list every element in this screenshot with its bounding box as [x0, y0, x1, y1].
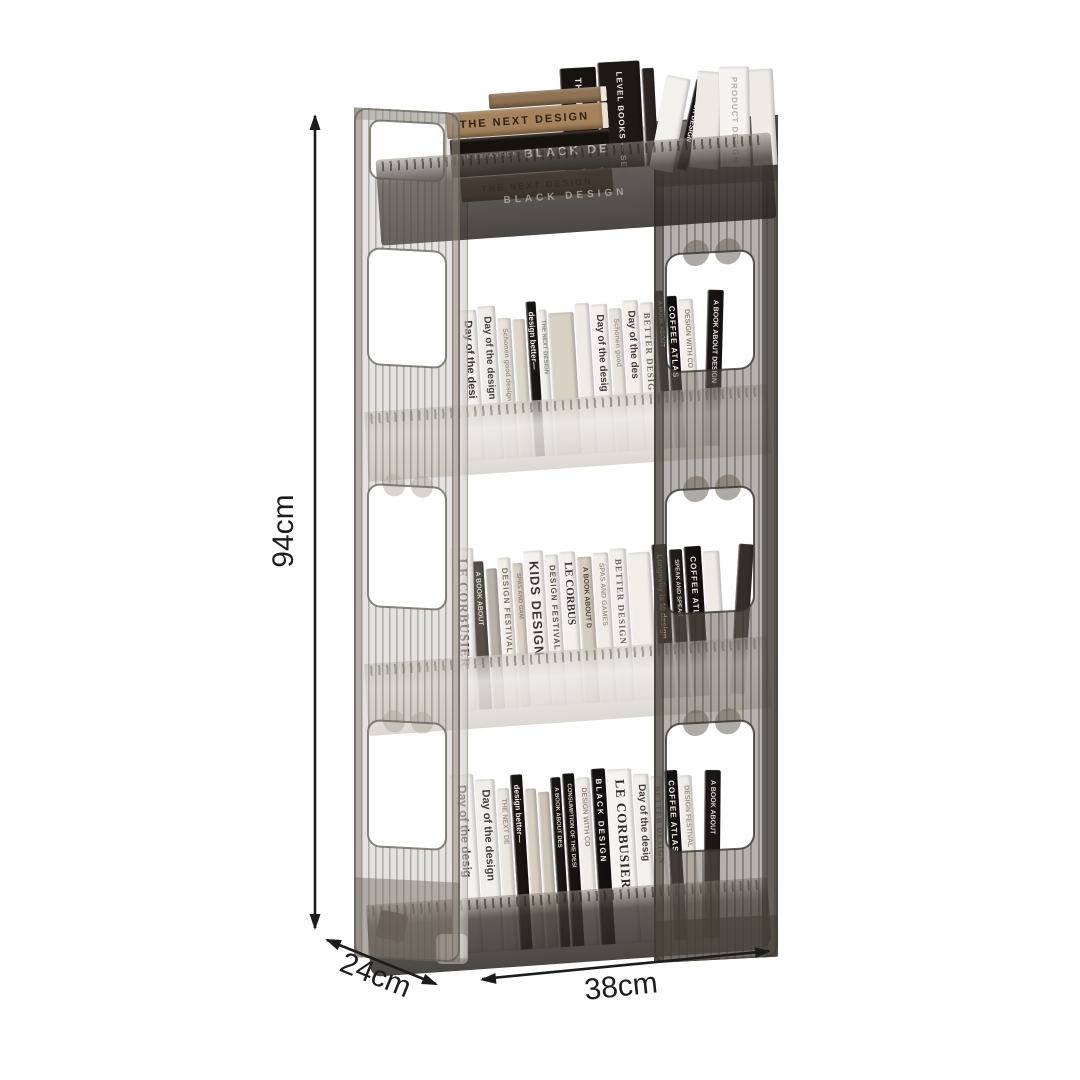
tray-engraving-text: BLACK DESIGN — [503, 186, 628, 206]
book-spine-title: design better— — [511, 774, 524, 843]
book-spine-title: SPAS AND GAMES — [597, 553, 608, 626]
book-spine-title — [711, 72, 712, 82]
right-side-panel-graphic — [654, 115, 778, 963]
book-spine-title: Schonen good design — [500, 318, 512, 401]
left-side-panel-graphic — [354, 107, 460, 963]
book-spine-title — [639, 553, 640, 563]
height-dimension-label: 94cm — [267, 494, 300, 567]
book-spine-title — [543, 792, 544, 802]
book-spine-title: BLACK DESIGN — [593, 768, 608, 863]
book-spine-title: THE NEXT DESIGN — [459, 110, 589, 131]
book-spine-title — [519, 319, 520, 329]
book-spine-title: Schonen good — [612, 308, 623, 367]
book-spine-title: Day of the design — [481, 306, 498, 400]
right-side-panel — [654, 115, 778, 963]
book-spine-title — [530, 789, 531, 799]
book-spine-title: CONSUMPTION OF THE DESI — [565, 773, 577, 868]
book-spine-title: Day of the desig — [635, 774, 651, 862]
book-spine-title: Day of the desig — [593, 304, 609, 392]
width-dimension-label: 38cm — [583, 966, 659, 1006]
book-spine-title — [761, 69, 762, 79]
book-spine-title: DESIGN FESTIVAL — [547, 555, 562, 651]
book-spine-title: Day of the design — [479, 779, 497, 881]
book-spine-title: A BOOK ABOUT DES — [552, 777, 562, 848]
book-spine-title — [561, 313, 562, 323]
book-spine-title: LE CORBUSIER — [611, 769, 634, 890]
book-spine-title — [677, 77, 679, 87]
book-spine-title: THE NEXT DE — [499, 788, 509, 845]
left-side-panel — [354, 107, 460, 963]
book-spine-title: BETTER DESIGN — [613, 549, 629, 646]
book-spine-title: LE CORBUS — [561, 552, 577, 626]
book-spine-title — [491, 569, 492, 579]
book-spine-title: KIDS DESIGN — [526, 551, 547, 657]
book-spine-title — [582, 303, 583, 313]
book-spine-title: Day of the des — [625, 300, 641, 379]
book-spine-title: A BOOK ABOUT D — [581, 557, 592, 629]
book-spine-title: THE NEXT DESIGN — [539, 310, 549, 375]
book-spine-title: SPAS AND GAM — [514, 563, 523, 619]
product-dimension-image: Day of the desiDay of the designSchonen … — [0, 0, 1080, 1080]
book-spine-title: DESIGN WITH CO — [579, 777, 590, 846]
